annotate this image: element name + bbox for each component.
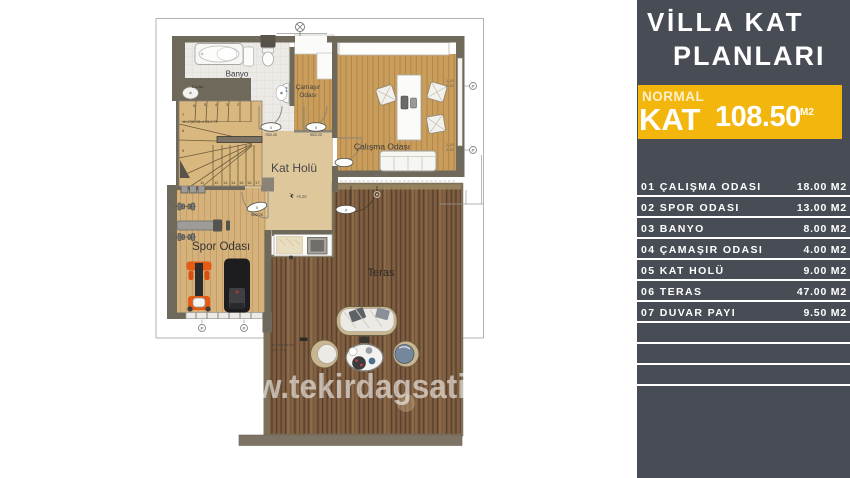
- svg-text:Odası: Odası: [299, 92, 317, 99]
- svg-text:Spor Odası: Spor Odası: [192, 241, 250, 253]
- svg-text:12: 12: [214, 180, 219, 185]
- svg-text:D.LAV.: D.LAV.: [192, 84, 204, 89]
- svg-text:P: P: [242, 326, 245, 331]
- svg-text:P: P: [200, 326, 203, 331]
- svg-text:2.10: 2.10: [446, 83, 455, 88]
- svg-text:m2/20: m2/20: [375, 172, 387, 177]
- svg-text:90/2.20: 90/2.20: [251, 213, 263, 217]
- svg-text:15: 15: [239, 180, 244, 185]
- svg-text:+5.20: +5.20: [296, 194, 307, 199]
- svg-text:8×17|8×28=4.55-2.73: 8×17|8×28=4.55-2.73: [183, 120, 217, 124]
- svg-text:Çamaşır: Çamaşır: [296, 84, 321, 91]
- svg-text:Kat Holü: Kat Holü: [271, 161, 317, 175]
- svg-text:90/2.20: 90/2.20: [310, 133, 322, 137]
- svg-text:13: 13: [223, 180, 228, 185]
- svg-text:yeri çkş: yeri çkş: [272, 347, 286, 352]
- svg-text:14: 14: [231, 180, 236, 185]
- svg-text:70/2.20: 70/2.20: [265, 133, 277, 137]
- svg-text:Teras: Teras: [368, 267, 395, 279]
- svg-text:17: 17: [255, 180, 260, 185]
- svg-text:Çalışma Odası: Çalışma Odası: [354, 142, 410, 152]
- svg-text:Banyo: Banyo: [226, 70, 249, 79]
- svg-text:w.tekirdagsati: w.tekirdagsati: [256, 368, 466, 406]
- svg-text:P: P: [471, 84, 474, 89]
- svg-text:16: 16: [247, 180, 252, 185]
- svg-text:2.10: 2.10: [446, 147, 455, 152]
- svg-text:P: P: [471, 148, 474, 153]
